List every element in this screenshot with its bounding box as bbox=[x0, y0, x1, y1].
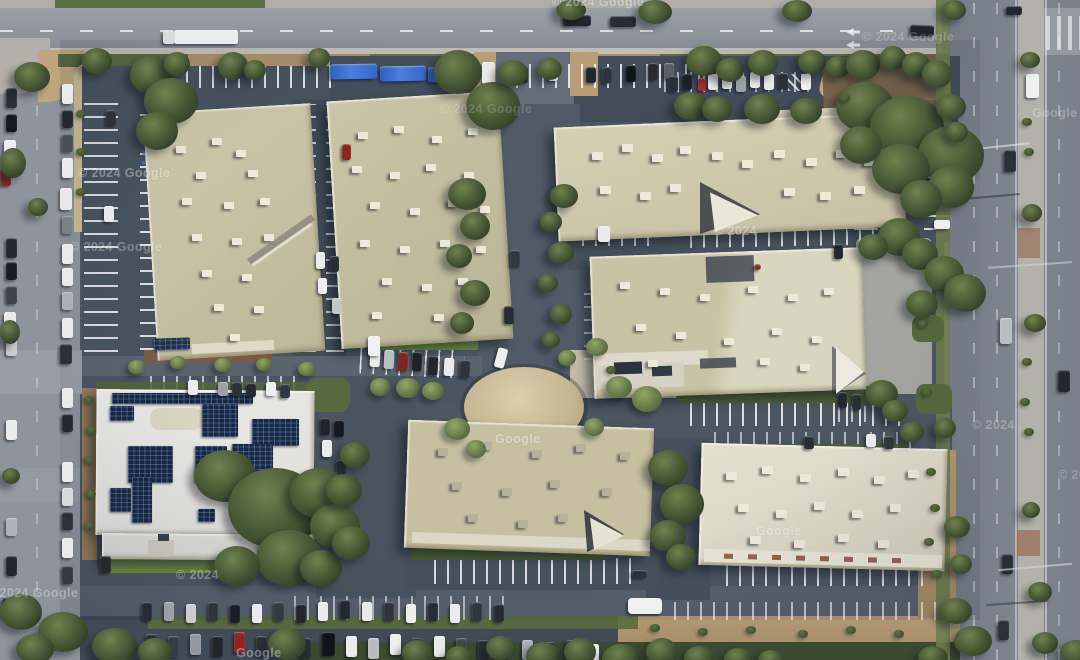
tree bbox=[0, 320, 20, 344]
tree bbox=[1022, 502, 1040, 518]
tree bbox=[632, 386, 662, 412]
tree bbox=[460, 212, 490, 240]
tree bbox=[942, 0, 966, 20]
bushes bbox=[1020, 398, 1030, 406]
tree bbox=[858, 234, 888, 260]
car bbox=[494, 604, 504, 622]
car bbox=[186, 604, 196, 623]
top-road-lane-dashes bbox=[0, 30, 944, 32]
car bbox=[190, 634, 201, 655]
tree bbox=[782, 0, 812, 22]
car bbox=[801, 74, 811, 90]
car bbox=[586, 67, 596, 83]
car bbox=[764, 74, 774, 90]
car bbox=[632, 570, 647, 578]
bushes bbox=[84, 456, 94, 464]
tree bbox=[16, 634, 54, 660]
bushes bbox=[746, 626, 756, 634]
tree bbox=[214, 358, 232, 372]
car bbox=[62, 268, 73, 286]
car bbox=[60, 344, 72, 364]
tree bbox=[716, 58, 744, 82]
bushes bbox=[650, 624, 660, 632]
bushes bbox=[918, 320, 928, 328]
car bbox=[266, 382, 276, 396]
car bbox=[346, 636, 357, 657]
tree bbox=[170, 356, 186, 369]
tree bbox=[326, 474, 362, 506]
bushes bbox=[86, 490, 96, 498]
car bbox=[218, 382, 228, 396]
car bbox=[316, 252, 325, 269]
map-watermark: © 2024 Google bbox=[78, 166, 170, 180]
tree bbox=[882, 400, 908, 422]
car bbox=[1002, 554, 1013, 574]
bushes bbox=[86, 426, 96, 434]
car bbox=[188, 380, 198, 395]
tree bbox=[540, 212, 562, 232]
car bbox=[6, 238, 17, 258]
map-watermark: © 2024 Google bbox=[0, 586, 78, 600]
tree bbox=[538, 274, 558, 292]
car bbox=[60, 188, 72, 210]
map-watermark: © 2024 bbox=[176, 568, 219, 582]
bushes bbox=[606, 366, 616, 374]
map-watermark: Google bbox=[495, 432, 540, 446]
car bbox=[62, 512, 73, 530]
car bbox=[100, 556, 111, 573]
car bbox=[834, 244, 843, 259]
rv-white bbox=[628, 598, 662, 614]
tree bbox=[790, 98, 822, 124]
tree bbox=[340, 442, 370, 468]
car bbox=[62, 538, 73, 558]
tree bbox=[402, 640, 432, 660]
car bbox=[62, 414, 73, 432]
tree bbox=[944, 516, 970, 538]
tree bbox=[128, 360, 146, 374]
tree bbox=[486, 636, 516, 660]
van bbox=[1000, 318, 1012, 344]
tree bbox=[538, 58, 562, 80]
car bbox=[6, 262, 17, 280]
tree bbox=[92, 628, 138, 660]
bushes bbox=[84, 396, 94, 404]
right-road-lane-dash bbox=[1058, 0, 1060, 660]
bushes bbox=[932, 570, 942, 578]
car bbox=[504, 306, 514, 324]
tree bbox=[702, 96, 732, 122]
car bbox=[208, 602, 218, 621]
bushes bbox=[1024, 428, 1034, 436]
photo-shade bbox=[60, 40, 980, 620]
map-watermark: © 2024 Google bbox=[862, 30, 954, 44]
bushes bbox=[924, 538, 934, 546]
car bbox=[62, 292, 73, 310]
car bbox=[444, 358, 455, 376]
tree bbox=[954, 626, 992, 656]
tree bbox=[300, 550, 342, 586]
tree bbox=[840, 126, 882, 164]
tree bbox=[444, 418, 470, 440]
tree bbox=[564, 638, 596, 660]
car bbox=[252, 604, 262, 623]
tree bbox=[136, 112, 178, 150]
tree bbox=[586, 338, 608, 356]
tree bbox=[550, 184, 578, 208]
car bbox=[330, 256, 339, 272]
car bbox=[412, 352, 423, 371]
tree bbox=[138, 638, 172, 660]
tree bbox=[82, 48, 112, 74]
tree bbox=[1028, 582, 1052, 602]
semi-trailer-blue bbox=[380, 66, 426, 82]
tree bbox=[14, 62, 50, 92]
tree bbox=[332, 526, 370, 560]
bushes bbox=[926, 468, 936, 476]
car bbox=[450, 604, 460, 623]
car bbox=[804, 436, 814, 449]
bushes bbox=[76, 148, 86, 156]
bushes bbox=[922, 388, 932, 396]
median-dirt-patch bbox=[1016, 530, 1040, 556]
car bbox=[62, 134, 73, 152]
tree bbox=[28, 198, 48, 216]
semi-truck-trailer bbox=[174, 30, 238, 44]
car bbox=[610, 16, 636, 27]
satellite-map-canvas[interactable]: © 2024 Google© 2024 GoogleGoogle© 2024 G… bbox=[0, 0, 1080, 660]
car bbox=[6, 518, 17, 536]
tree bbox=[584, 418, 604, 436]
car bbox=[106, 110, 116, 126]
tree bbox=[660, 484, 704, 524]
tree bbox=[606, 376, 632, 398]
tree bbox=[900, 422, 924, 442]
car bbox=[246, 383, 256, 397]
car bbox=[698, 78, 706, 91]
car bbox=[390, 634, 401, 655]
car bbox=[274, 602, 284, 621]
car bbox=[1006, 6, 1022, 15]
car bbox=[232, 382, 242, 396]
car bbox=[384, 350, 395, 369]
car bbox=[384, 602, 394, 621]
car bbox=[230, 604, 240, 623]
car bbox=[406, 604, 416, 623]
tree bbox=[558, 350, 576, 366]
tree bbox=[744, 94, 780, 124]
tree bbox=[934, 418, 956, 438]
car bbox=[332, 298, 341, 314]
car bbox=[398, 352, 409, 371]
car bbox=[626, 65, 636, 82]
tree bbox=[498, 60, 528, 86]
tree bbox=[900, 180, 942, 218]
car bbox=[852, 394, 861, 410]
car bbox=[62, 110, 73, 128]
bushes bbox=[1022, 358, 1032, 366]
tree bbox=[548, 242, 574, 264]
car bbox=[754, 264, 761, 270]
car bbox=[682, 74, 692, 90]
left-street-dash bbox=[36, 60, 38, 660]
car bbox=[708, 74, 718, 90]
map-watermark: Google bbox=[1032, 106, 1077, 120]
map-watermark: © 2024 bbox=[714, 224, 757, 238]
tree bbox=[936, 94, 966, 120]
tree bbox=[946, 122, 968, 142]
tree bbox=[922, 60, 952, 88]
car bbox=[296, 604, 306, 623]
car bbox=[318, 278, 327, 294]
bushes bbox=[76, 188, 86, 196]
car bbox=[602, 67, 612, 83]
median-edge-line bbox=[1015, 0, 1017, 660]
tree bbox=[648, 450, 688, 486]
car bbox=[6, 286, 17, 304]
tree bbox=[256, 358, 272, 371]
median-edge-line bbox=[1045, 0, 1047, 660]
tree bbox=[218, 52, 248, 80]
car bbox=[428, 356, 439, 375]
tree bbox=[244, 60, 266, 80]
car bbox=[6, 420, 17, 440]
car bbox=[104, 206, 114, 222]
tree bbox=[550, 304, 572, 324]
tree bbox=[308, 48, 330, 68]
bushes bbox=[840, 94, 850, 102]
tree bbox=[906, 290, 938, 318]
map-watermark: Google bbox=[756, 524, 801, 538]
car bbox=[62, 158, 73, 178]
car bbox=[142, 602, 152, 621]
right-road-lane-dash bbox=[996, 0, 998, 660]
tree bbox=[448, 178, 486, 210]
bushes bbox=[698, 628, 708, 636]
map-watermark: © 2024 Google bbox=[440, 102, 532, 116]
tree bbox=[396, 378, 420, 398]
semi-truck-cab bbox=[163, 31, 175, 44]
car bbox=[998, 620, 1009, 640]
tree bbox=[164, 52, 190, 76]
car bbox=[340, 600, 350, 619]
car bbox=[280, 384, 290, 398]
map-watermark: © 2024 Google bbox=[70, 240, 162, 254]
map-watermark: © 2024 Google bbox=[552, 0, 644, 9]
tree bbox=[940, 598, 972, 624]
tree bbox=[646, 638, 678, 660]
bushes bbox=[798, 630, 808, 638]
car bbox=[362, 602, 372, 621]
tree bbox=[2, 468, 20, 484]
suv-black bbox=[322, 632, 335, 656]
bushes bbox=[894, 630, 904, 638]
car bbox=[1004, 150, 1016, 172]
bushes bbox=[846, 626, 856, 634]
car bbox=[342, 144, 351, 160]
car bbox=[62, 488, 73, 506]
tree bbox=[0, 148, 26, 178]
car bbox=[510, 250, 520, 267]
crosswalk-ne bbox=[1046, 16, 1080, 50]
car bbox=[866, 434, 876, 447]
car bbox=[434, 636, 445, 657]
car bbox=[472, 602, 482, 621]
car bbox=[320, 418, 330, 435]
car bbox=[1026, 74, 1039, 98]
tree bbox=[798, 50, 826, 74]
bushes bbox=[930, 504, 940, 512]
car bbox=[6, 88, 17, 108]
car bbox=[62, 84, 73, 104]
map-watermark: © 2024 bbox=[1058, 468, 1080, 482]
car bbox=[334, 420, 344, 437]
tree bbox=[370, 378, 390, 396]
car bbox=[318, 602, 328, 621]
car bbox=[62, 388, 73, 408]
tree bbox=[748, 50, 778, 76]
car bbox=[778, 73, 788, 89]
car bbox=[62, 566, 73, 584]
car bbox=[164, 602, 174, 621]
car bbox=[668, 76, 678, 92]
tree bbox=[1032, 632, 1058, 654]
car bbox=[648, 63, 658, 80]
car bbox=[322, 440, 332, 457]
tree bbox=[298, 362, 316, 376]
car bbox=[62, 216, 73, 234]
car bbox=[460, 360, 471, 378]
semi-trailer-blue bbox=[330, 64, 377, 80]
car bbox=[884, 436, 894, 449]
car bbox=[62, 318, 73, 338]
tree bbox=[542, 332, 560, 348]
car bbox=[368, 638, 379, 659]
bushes bbox=[76, 110, 86, 118]
tree bbox=[422, 382, 444, 400]
map-watermark: © 2024 bbox=[972, 418, 1015, 432]
tree bbox=[214, 546, 260, 586]
bushes bbox=[84, 522, 94, 530]
car bbox=[212, 636, 223, 657]
bushes bbox=[1024, 148, 1034, 156]
car bbox=[428, 602, 438, 621]
car bbox=[934, 220, 950, 229]
tree bbox=[1022, 204, 1042, 222]
tree bbox=[950, 554, 972, 574]
bushes bbox=[1022, 118, 1032, 126]
tree bbox=[446, 244, 472, 268]
car bbox=[6, 114, 17, 132]
car bbox=[62, 462, 73, 482]
median-dirt-patch bbox=[1018, 228, 1040, 258]
car bbox=[838, 392, 847, 408]
car bbox=[6, 556, 17, 576]
tree bbox=[466, 440, 486, 458]
tree bbox=[666, 544, 696, 570]
tree bbox=[1024, 314, 1046, 332]
truck-white bbox=[368, 336, 380, 356]
car bbox=[598, 226, 610, 242]
tree bbox=[944, 274, 986, 312]
car bbox=[1058, 370, 1070, 392]
map-watermark: Google bbox=[236, 646, 281, 660]
van bbox=[482, 62, 495, 84]
tree bbox=[450, 312, 474, 334]
tree bbox=[846, 50, 880, 80]
tree bbox=[460, 280, 490, 306]
tree bbox=[1020, 52, 1040, 68]
